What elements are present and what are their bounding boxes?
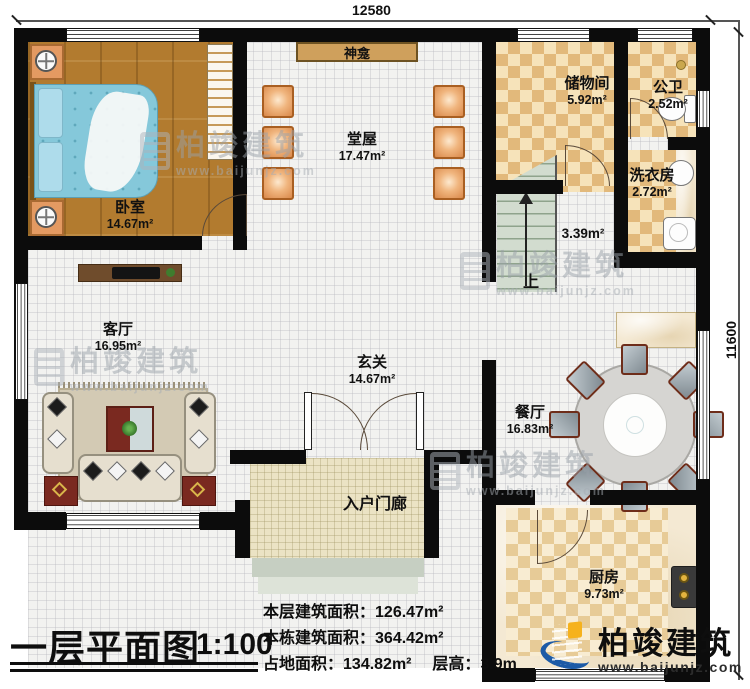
wall	[14, 512, 66, 530]
wall	[496, 180, 563, 194]
room-label-porch: 入户门廊	[343, 496, 407, 514]
dining-chair	[621, 344, 648, 375]
stat-label: 层高：	[432, 656, 480, 673]
hall-chair	[433, 85, 465, 118]
room-label-hall: 堂屋 17.47m²	[339, 132, 386, 163]
dining-chair	[549, 411, 580, 438]
stat-value: 126.47m²	[375, 604, 444, 621]
plant-icon	[122, 421, 137, 436]
hall-chair	[262, 126, 294, 159]
room-name: 入户门廊	[343, 496, 407, 514]
wall	[424, 450, 496, 464]
hall-chair	[433, 126, 465, 159]
wall	[614, 252, 710, 268]
room-label-storage: 储物间 5.92m²	[564, 76, 609, 107]
room-name: 洗衣房	[629, 168, 674, 185]
window	[697, 90, 710, 128]
window	[66, 28, 200, 42]
stat-label: 本层建筑面积：	[263, 604, 375, 621]
room-area: 16.95m²	[95, 339, 142, 353]
wall	[482, 360, 496, 682]
stat-building-area: 本栋建筑面积：364.42m²	[263, 624, 444, 648]
burner-icon	[679, 573, 689, 583]
sideboard	[616, 312, 696, 348]
wardrobe	[207, 44, 233, 160]
logo-flag	[568, 621, 582, 638]
porch-step	[258, 577, 418, 594]
washer-drum	[669, 223, 688, 242]
stat-footprint-and-height: 占地面积：134.82m² 层高：3.9m	[263, 650, 517, 674]
hall-chair	[433, 167, 465, 200]
room-area: 14.67m²	[107, 217, 154, 231]
window	[697, 330, 710, 480]
lamp-icon	[35, 50, 57, 72]
wall	[482, 42, 496, 282]
room-area: 17.47m²	[339, 149, 386, 163]
window	[66, 513, 200, 529]
stat-value: 364.42m²	[375, 630, 444, 647]
room-area: 2.72m²	[629, 185, 674, 199]
hall-chair	[262, 85, 294, 118]
brand-name: 柏竣建筑	[598, 628, 734, 659]
room-name: 餐厅	[507, 405, 554, 422]
rug-fringe	[58, 382, 208, 388]
stairwell-area-label: 3.39m²	[562, 226, 605, 241]
entry-door-leaf	[304, 392, 312, 450]
room-label-kitchen: 厨房 9.73m²	[584, 570, 624, 601]
dimension-height: 11600	[723, 321, 739, 359]
brand-logo-icon	[544, 624, 594, 672]
room-label-bedroom: 卧室 14.67m²	[107, 200, 154, 231]
title-underline	[10, 662, 258, 665]
porch-step	[252, 558, 424, 577]
faucet-icon	[676, 60, 686, 70]
wall	[424, 464, 439, 558]
pillow	[38, 142, 63, 192]
plan-scale: 1:100	[196, 628, 273, 662]
room-area: 5.92m²	[564, 93, 609, 107]
room-name: 卧室	[107, 200, 154, 217]
window	[15, 283, 28, 400]
dimension-line-top	[16, 20, 740, 22]
title-underline	[10, 669, 258, 672]
wall	[496, 490, 535, 505]
wall	[668, 137, 696, 150]
floor-plan: 12580 11600 神龛	[0, 0, 750, 689]
stat-label: 占地面积：	[263, 656, 343, 673]
room-name: 客厅	[95, 322, 142, 339]
entry-door-leaf	[416, 392, 424, 450]
room-area: 2.52m²	[648, 97, 688, 111]
room-label-laundry: 洗衣房 2.72m²	[629, 168, 674, 199]
room-name: 厨房	[584, 570, 624, 587]
room-label-living: 客厅 16.95m²	[95, 322, 142, 353]
room-area: 14.67m²	[349, 372, 396, 386]
shrine-altar: 神龛	[296, 42, 418, 62]
room-area: 3.39m²	[562, 226, 605, 241]
hall-chair	[262, 167, 294, 200]
stat-value: 3.9m	[480, 656, 516, 673]
wall	[230, 450, 306, 464]
tv	[112, 267, 160, 279]
dimension-width: 12580	[352, 2, 391, 18]
burner-icon	[679, 590, 689, 600]
room-name: 公卫	[648, 80, 688, 97]
room-label-bathroom: 公卫 2.52m²	[648, 80, 688, 111]
stair-up-text: 上	[523, 274, 539, 292]
wall	[614, 42, 628, 252]
room-area: 9.73m²	[584, 587, 624, 601]
stat-label: 本栋建筑面积：	[263, 630, 375, 647]
stair-direction-label: 上	[523, 274, 539, 292]
room-name: 储物间	[564, 76, 609, 93]
window	[517, 28, 590, 42]
room-label-dining: 餐厅 16.83m²	[507, 405, 554, 436]
room-label-foyer: 玄关 14.67m²	[349, 355, 396, 386]
plant-icon	[166, 268, 175, 277]
stat-floor-area: 本层建筑面积：126.47m²	[263, 598, 444, 622]
room-name: 堂屋	[339, 132, 386, 149]
wall	[14, 236, 202, 250]
stat-value: 134.82m²	[343, 656, 412, 673]
lamp-icon	[35, 206, 57, 228]
room-name: 玄关	[349, 355, 396, 372]
room-area: 16.83m²	[507, 422, 554, 436]
wall	[235, 500, 250, 558]
window	[637, 28, 693, 42]
wall	[590, 490, 696, 505]
brand-url: www.baijunjz.com	[598, 659, 743, 675]
dining-table-center	[626, 416, 644, 434]
wall	[200, 512, 235, 530]
pillow	[38, 88, 63, 138]
